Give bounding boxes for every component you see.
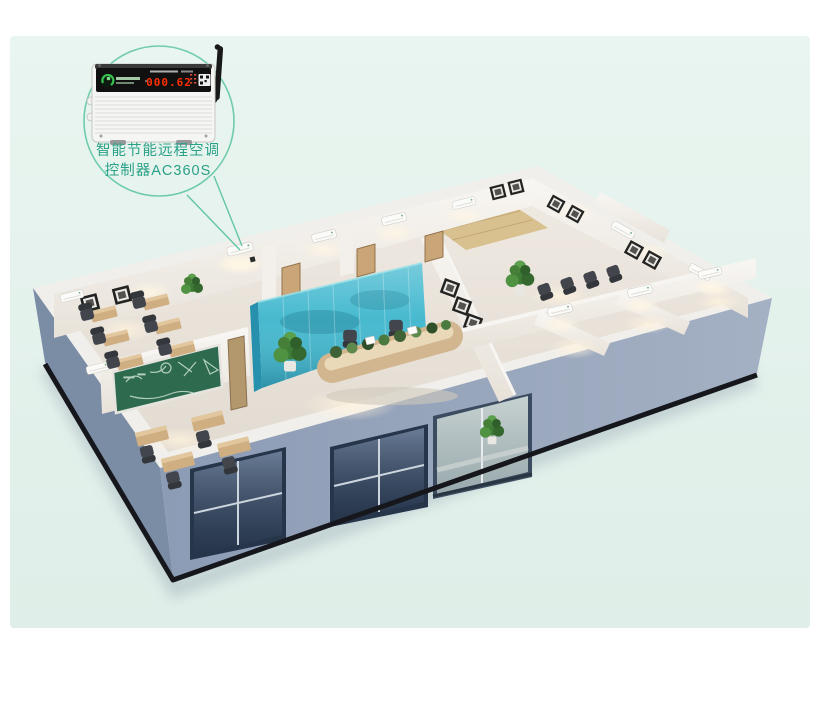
led-display: 000.62 <box>146 76 192 89</box>
brand-logo-icon <box>101 74 114 87</box>
marketing-illustration: 000.62 智能节能远程空调 控制器AC360S <box>0 0 820 716</box>
brand-name-text <box>116 77 140 80</box>
wood-door <box>425 231 443 262</box>
panel-title-text <box>150 71 178 73</box>
interior-wall <box>262 244 276 306</box>
device-label-line2: 控制器AC360S <box>105 162 212 179</box>
wood-panel <box>228 336 247 410</box>
device-label-line1: 智能节能远程空调 <box>96 142 220 159</box>
device-front-panel: 000.62 <box>96 64 211 92</box>
qr-code <box>199 74 211 86</box>
interior-wall <box>340 226 354 276</box>
scene-canvas: 000.62 智能节能远程空调 控制器AC360S <box>0 0 820 716</box>
